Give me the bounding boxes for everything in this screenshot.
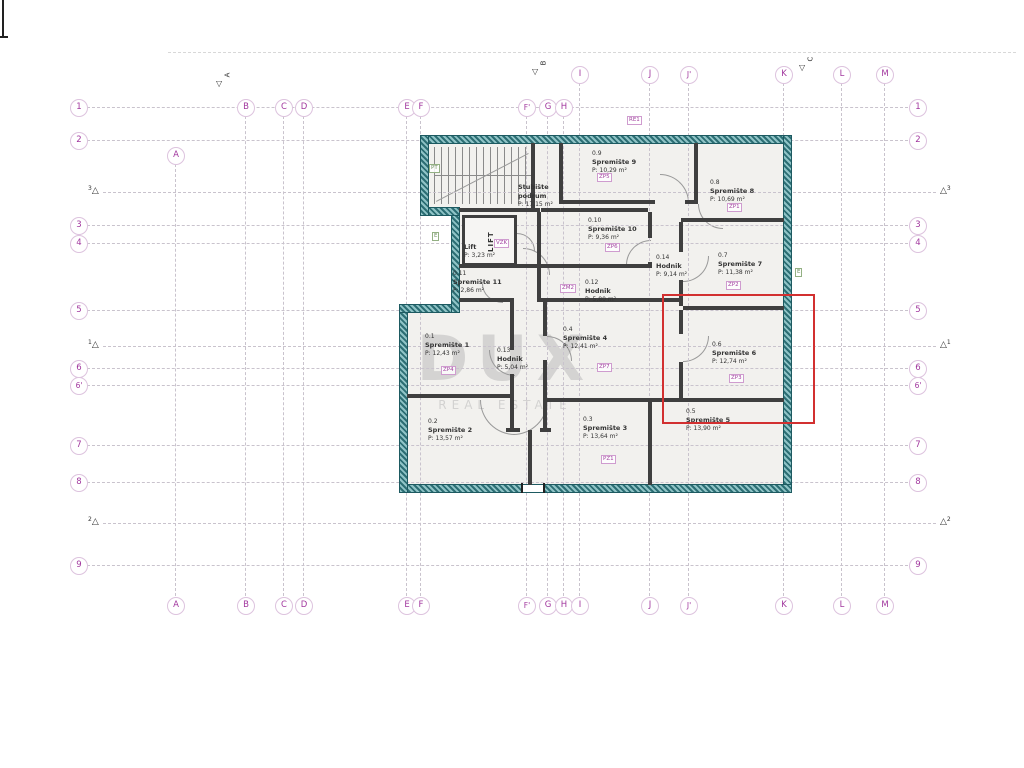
grid-row-bubble-left: 3 [70,217,88,235]
grid-row-bubble-right: 1 [909,99,927,117]
room-tag: ZP5 [597,173,612,182]
room-label: 0.3Spremište 3P: 13,64 m² [583,416,627,440]
grid-column-line [841,83,842,596]
room-label: 0.12HodnikP: 5,80 m² [585,279,616,303]
grid-column-bubble-top: A [167,147,185,165]
grid-column-bubble-top: J' [680,66,698,84]
view-marker: ▽B [532,58,548,78]
grid-row-bubble-left: 4 [70,235,88,253]
grid-column-line [245,116,246,596]
exterior-wall [452,210,459,312]
grid-row-bubble-left: 6 [70,360,88,378]
interior-wall [563,200,655,204]
section-marker-right: △1 [940,337,951,350]
section-marker-left: 1△ [88,337,99,350]
wall-tag: E [432,232,439,241]
interior-wall [541,208,648,212]
exterior-wall [400,305,459,312]
room-tag: ZP1 [727,203,742,212]
grid-column-line [884,83,885,596]
interior-wall [648,212,652,238]
grid-column-bubble-bottom: F [412,597,430,615]
grid-column-bubble-bottom: M [876,597,894,615]
grid-row-bubble-right: 6' [909,377,927,395]
grid-column-bubble-bottom: F' [518,597,536,615]
interior-wall [407,394,510,398]
grid-row-bubble-left: 5 [70,302,88,320]
interior-wall [510,374,514,398]
interior-wall [510,302,514,350]
interior-wall [694,143,698,204]
room-label: 0.9Spremište 9P: 10,29 m² [592,150,636,174]
exterior-wall [400,485,791,492]
interior-wall [679,222,683,252]
grid-row-bubble-right: 4 [909,235,927,253]
highlight-rectangle [662,294,815,424]
grid-column-bubble-top: F' [518,99,536,117]
grid-row-bubble-right: 5 [909,302,927,320]
room-tag: PZ1 [601,455,616,464]
grid-row-bubble-right: 9 [909,557,927,575]
grid-column-bubble-top: L [833,66,851,84]
grid-row-bubble-left: 8 [70,474,88,492]
grid-column-bubble-bottom: I [571,597,589,615]
grid-column-bubble-bottom: K [775,597,793,615]
grid-column-bubble-bottom: J [641,597,659,615]
interior-wall [510,398,514,432]
exterior-wall [400,305,407,492]
grid-row-bubble-right: 3 [909,217,927,235]
room-tag: ZP7 [597,363,612,372]
wall-tag: E [795,268,802,277]
wall-tag: ZM2 [560,284,576,293]
interior-wall [648,262,652,268]
room-label: 0.4Spremište 4P: 12,41 m² [563,326,607,350]
room-tag: ZP6 [605,243,620,252]
grid-column-bubble-bottom: A [167,597,185,615]
grid-row-line [87,565,908,566]
grid-row-bubble-right: 8 [909,474,927,492]
grid-column-bubble-top: M [876,66,894,84]
view-marker: ▽A [216,70,232,90]
interior-wall [459,298,514,302]
grid-column-bubble-top: B [237,99,255,117]
grid-row-bubble-right: 6 [909,360,927,378]
grid-row-bubble-right: 2 [909,132,927,150]
view-marker: ▽C [799,54,815,74]
room-label: 0.10Spremište 10P: 9,36 m² [588,217,637,241]
grid-column-line [175,164,176,596]
grid-column-bubble-top: I [571,66,589,84]
exterior-wall [421,136,428,215]
interior-wall [559,143,563,204]
room-label: 0.11Spremište 11P: 2,86 m² [453,270,502,294]
grid-column-line [303,116,304,596]
room-label: 0.8Spremište 8P: 10,69 m² [710,179,754,203]
section-marker-right: △3 [940,183,951,196]
sheet-top-line [168,52,1016,53]
grid-row-bubble-left: 9 [70,557,88,575]
sheet-corner-mark [2,0,4,37]
room-label: 0.13HodnikP: 5,04 m² [497,347,528,371]
section-line [103,523,936,524]
section-marker-right: △2 [940,514,951,527]
grid-column-bubble-top: H [555,99,573,117]
grid-column-bubble-top: D [295,99,313,117]
interior-wall [506,428,520,432]
interior-wall [537,212,541,302]
wall-tag: PT [429,164,440,173]
grid-row-bubble-left: 7 [70,437,88,455]
grid-column-bubble-top: J [641,66,659,84]
room-tag: ZP4 [441,366,456,375]
grid-row-bubble-right: 7 [909,437,927,455]
entry-gap [523,485,543,492]
room-tag: ZP2 [726,281,741,290]
grid-column-bubble-top: F [412,99,430,117]
door-frame-tick [521,483,523,493]
interior-wall [540,428,551,432]
interior-wall [541,264,648,268]
interior-wall [543,360,547,430]
wall-tag: VZK [494,239,509,248]
interior-wall [459,208,540,212]
floor-plan-canvas: DUX REAL ESTATE [0,0,1024,768]
grid-column-line [563,116,564,596]
interior-wall [543,302,547,336]
section-marker-left: 3△ [88,183,99,196]
grid-column-bubble-bottom: C [275,597,293,615]
grid-column-line [649,83,650,596]
grid-column-line [283,116,284,596]
stairwell-label: Stubište podrum P: 17,15 m² [518,183,553,208]
sheet-corner-mark [0,36,8,38]
grid-row-line [87,107,908,108]
grid-row-bubble-left: 1 [70,99,88,117]
grid-column-bubble-bottom: J' [680,597,698,615]
grid-column-bubble-top: C [275,99,293,117]
interior-wall [648,402,652,485]
section-marker-left: 2△ [88,514,99,527]
room-label: 0.14HodnikP: 9,14 m² [656,254,687,278]
wall-tag: RE1 [627,116,642,125]
grid-column-bubble-top: K [775,66,793,84]
lift-label: Lift P: 3,23 m² [464,243,495,260]
grid-column-bubble-bottom: B [237,597,255,615]
interior-wall [528,430,532,485]
door-frame-tick [543,483,545,493]
interior-wall [681,218,784,222]
grid-column-bubble-bottom: L [833,597,851,615]
grid-row-bubble-left: 2 [70,132,88,150]
room-label: 0.7Spremište 7P: 11,38 m² [718,252,762,276]
grid-row-bubble-left: 6' [70,377,88,395]
exterior-wall [421,136,791,143]
room-label: 0.2Spremište 2P: 13,57 m² [428,418,472,442]
grid-column-bubble-bottom: D [295,597,313,615]
room-label: 0.1Spremište 1P: 12,43 m² [425,333,469,357]
